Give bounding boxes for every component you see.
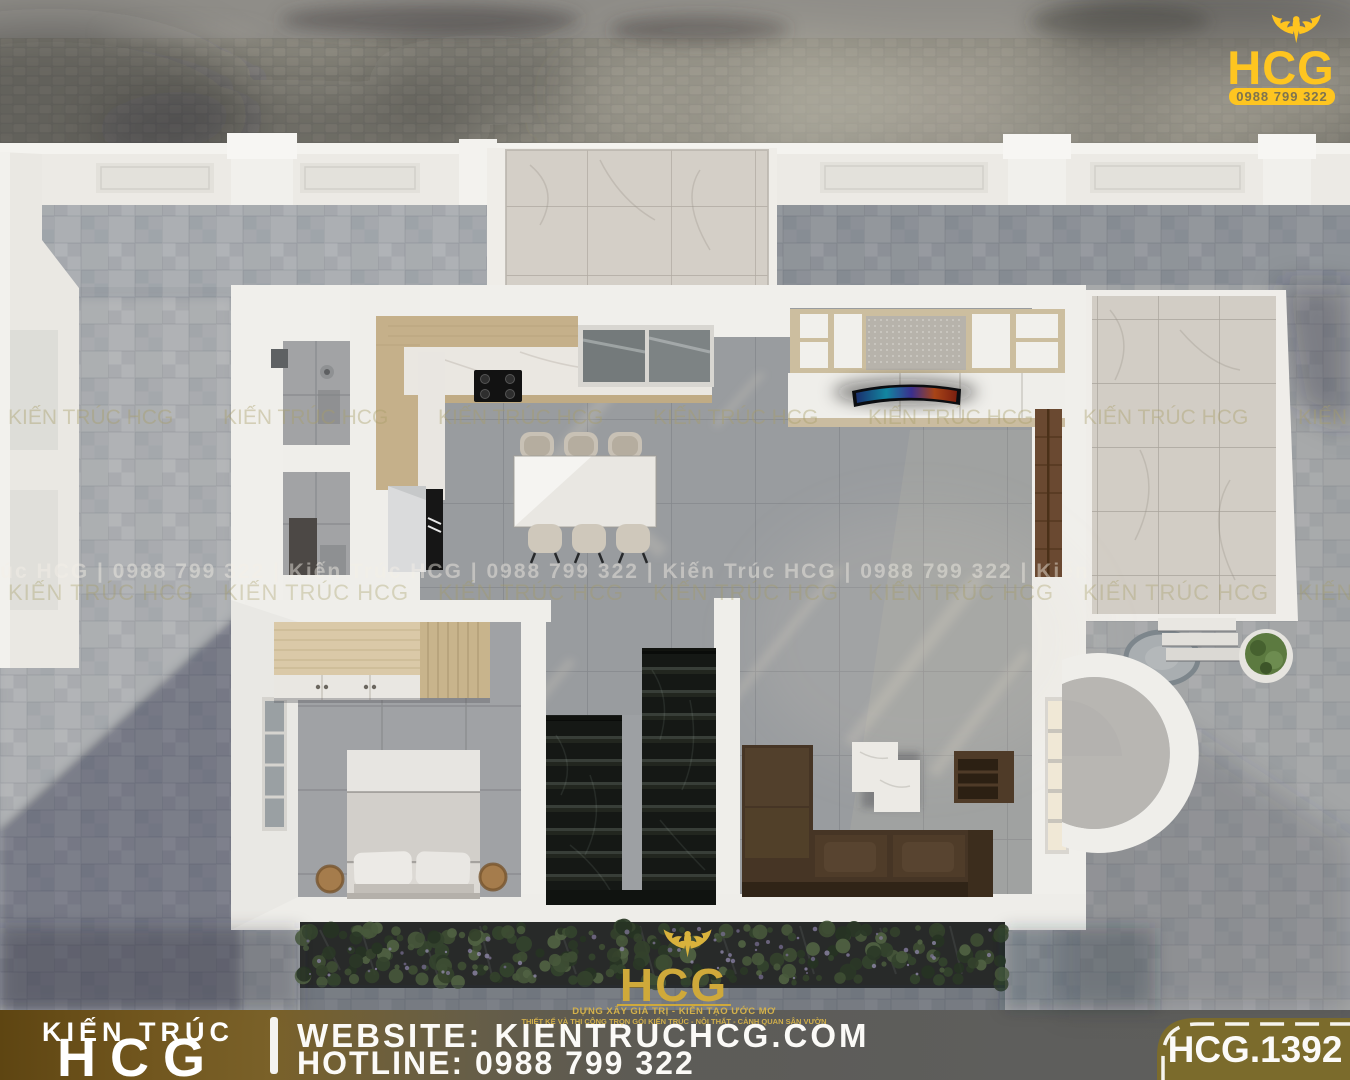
svg-text:KIẾN TRÚC HCG: KIẾN TRÚC HCG (223, 406, 388, 429)
svg-text:KIẾN TRÚC HCG: KIẾN TRÚC HCG (1298, 406, 1350, 429)
svg-text:KIẾN TRÚC HCG: KIẾN TRÚC HCG (1083, 406, 1248, 429)
svg-text:KIẾN TRÚC HCG: KIẾN TRÚC HCG (438, 406, 603, 429)
svg-text:KIẾN TRÚC HCG: KIẾN TRÚC HCG (1298, 580, 1350, 605)
svg-text:KIẾN TRÚC HCG: KIẾN TRÚC HCG (8, 406, 173, 429)
svg-text:HOTLINE: 0988 799 322: HOTLINE: 0988 799 322 (297, 1045, 695, 1080)
svg-text:0988 799 322: 0988 799 322 (1236, 89, 1328, 104)
svg-text:DỰNG XÂY GIÁ TRỊ - KIẾN TẠO ƯỚ: DỰNG XÂY GIÁ TRỊ - KIẾN TẠO ƯỚC MƠ (572, 1005, 776, 1017)
svg-text:KIẾN TRÚC HCG: KIẾN TRÚC HCG (8, 580, 194, 605)
svg-text:HCG: HCG (57, 1028, 219, 1080)
svg-text:KIẾN TRÚC HCG: KIẾN TRÚC HCG (868, 580, 1054, 605)
svg-text:HCG.1392: HCG.1392 (1168, 1029, 1343, 1070)
svg-text:KIẾN TRÚC HCG: KIẾN TRÚC HCG (653, 580, 839, 605)
svg-text:KIẾN TRÚC HCG: KIẾN TRÚC HCG (1083, 580, 1269, 605)
svg-text:KIẾN TRÚC HCG: KIẾN TRÚC HCG (868, 406, 1033, 429)
svg-text:KIẾN TRÚC HCG: KIẾN TRÚC HCG (653, 406, 818, 429)
svg-text:HCG: HCG (620, 959, 728, 1011)
svg-text:KIẾN TRÚC HCG: KIẾN TRÚC HCG (223, 580, 409, 605)
svg-text:KIẾN TRÚC HCG: KIẾN TRÚC HCG (438, 580, 624, 605)
svg-text:HCG: HCG (1227, 41, 1334, 94)
svg-text:THIẾT KẾ VÀ THI CÔNG TRỌN GÓI: THIẾT KẾ VÀ THI CÔNG TRỌN GÓI KIẾN TRÚC … (521, 1016, 826, 1026)
